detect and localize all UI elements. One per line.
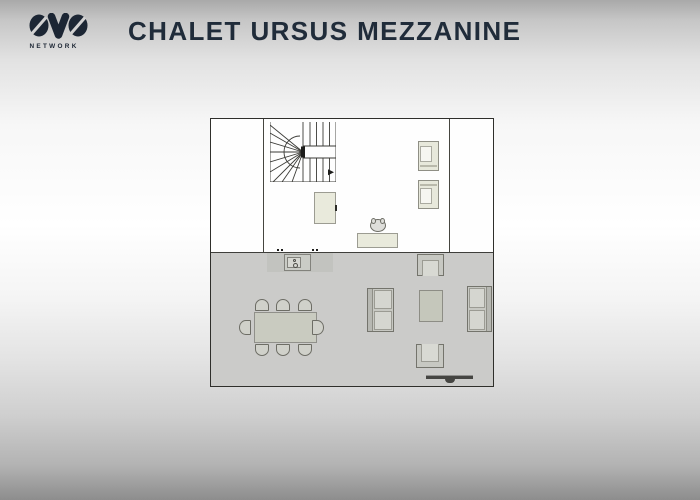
coffee-table — [419, 290, 443, 322]
dining-chair-n2 — [276, 299, 290, 311]
sofa-back — [486, 287, 491, 331]
chair-armrest — [380, 218, 385, 224]
floor-plan — [210, 118, 494, 387]
sofa-cushion — [374, 311, 392, 330]
desk-chair — [370, 219, 386, 232]
sofa-west — [367, 288, 394, 332]
lounge-chair-cushion — [420, 188, 432, 204]
dining-chair-w — [239, 320, 251, 335]
dining-chair-n3 — [298, 299, 312, 311]
sofa-back — [368, 289, 373, 331]
wall-mark-3 — [312, 249, 314, 251]
armchair-seat — [421, 344, 439, 362]
mezzanine-wall-left — [263, 119, 264, 252]
dining-table — [254, 312, 317, 343]
wardrobe-handle — [335, 205, 337, 211]
dining-chair-n1 — [255, 299, 269, 311]
armchair-seat — [422, 260, 439, 276]
chair-armrest — [371, 218, 376, 224]
ovo-network-logo: OVO NETWORK — [29, 13, 89, 51]
sofa-cushion — [469, 310, 485, 330]
logo-subtext: NETWORK — [30, 43, 79, 50]
sofa-cushion — [469, 288, 485, 308]
kitchen-sink-unit — [284, 254, 311, 271]
tv-stand — [445, 379, 455, 383]
wall-mark-1 — [277, 249, 279, 251]
desk — [357, 233, 398, 248]
tv — [426, 375, 473, 379]
mezzanine-wall-right — [449, 119, 450, 252]
armchair-north — [417, 254, 444, 276]
armchair-south — [416, 344, 444, 368]
sink — [287, 257, 301, 268]
lounge-chair-top — [418, 141, 439, 171]
lounge-chair-band — [420, 184, 437, 186]
wall-mark-4 — [316, 249, 318, 251]
lounge-chair-band — [420, 165, 437, 167]
faucet-icon — [293, 259, 296, 262]
lounge-chair-bottom — [418, 180, 439, 209]
staircase — [270, 122, 336, 182]
staircase-icon — [270, 122, 336, 182]
wardrobe — [314, 192, 336, 224]
page-title: CHALET URSUS MEZZANINE — [128, 16, 521, 47]
sofa-cushion — [374, 290, 392, 309]
sofa-east — [467, 286, 492, 332]
lounge-chair-cushion — [420, 146, 432, 162]
ovo-logo-icon: NETWORK — [29, 13, 89, 51]
wall-mark-2 — [281, 249, 283, 251]
